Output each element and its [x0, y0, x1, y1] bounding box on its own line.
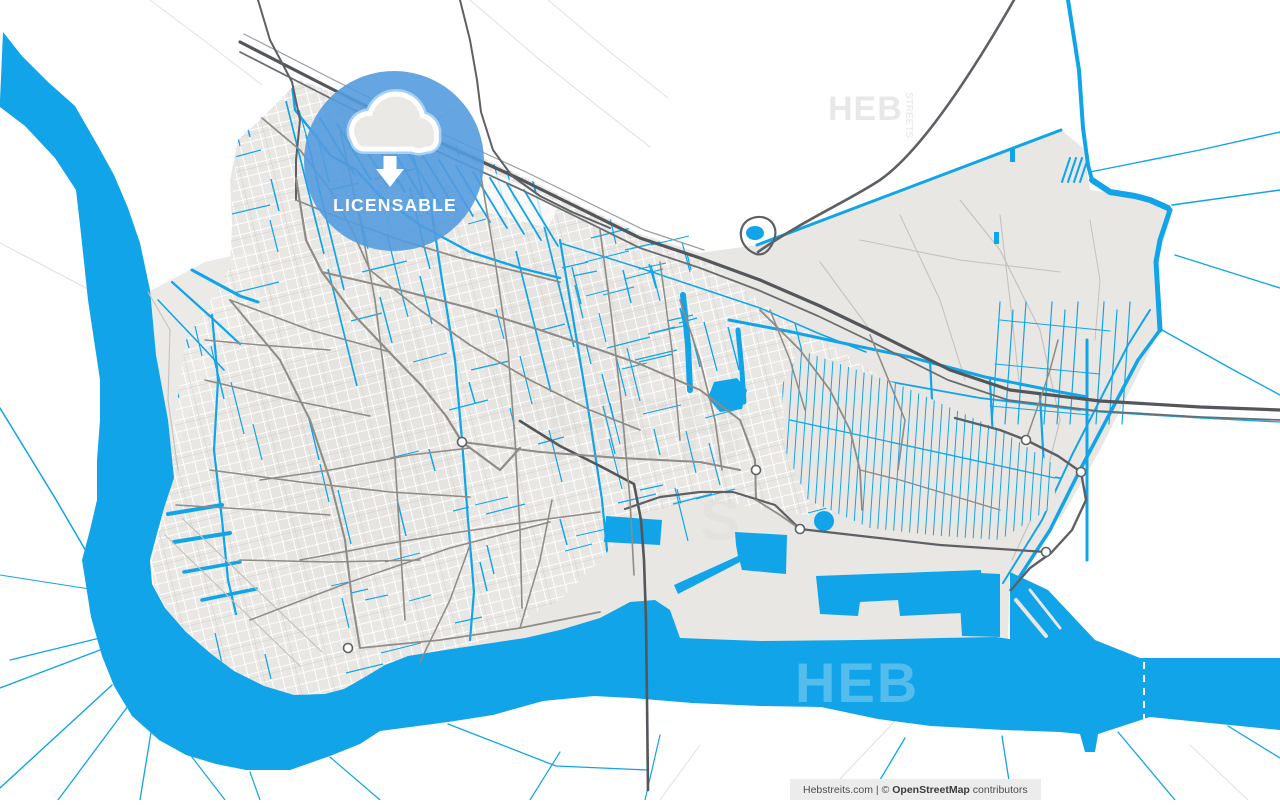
svg-text:HEB: HEB	[795, 651, 919, 714]
svg-text:LICENSABLE: LICENSABLE	[333, 195, 457, 215]
svg-text:Hebstreits.com | © OpenStreetM: Hebstreits.com | © OpenStreetMap contrib…	[803, 784, 1028, 796]
svg-text:STREETS: STREETS	[903, 92, 914, 138]
svg-text:S: S	[700, 486, 740, 553]
svg-text:HEB: HEB	[828, 90, 903, 128]
svg-text:HEB: HEB	[545, 380, 745, 482]
